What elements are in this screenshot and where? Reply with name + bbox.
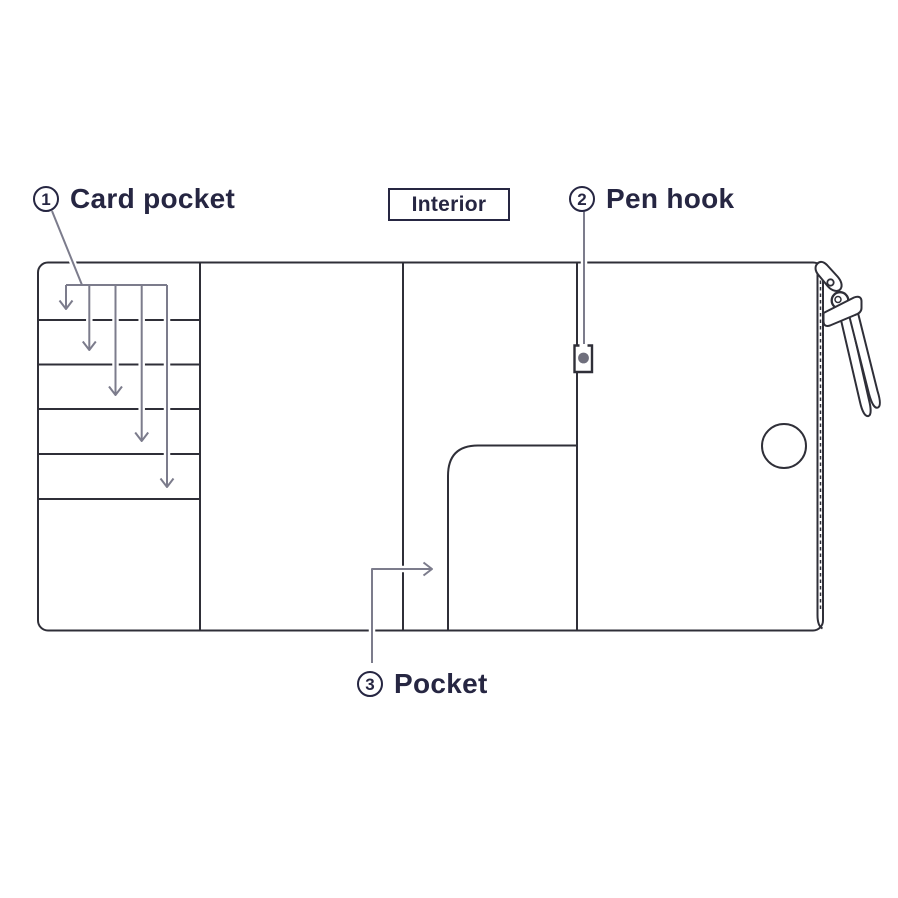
zipper-slider-hole	[827, 279, 833, 285]
organizer-interior-diagram	[0, 0, 898, 898]
pen-hook-label: Pen hook	[606, 183, 734, 215]
interior-tag: Interior	[388, 188, 510, 221]
pen-hook-snap-dot	[578, 353, 589, 364]
organizer-body	[38, 263, 823, 631]
pen-hook-callout: 2 Pen hook	[569, 183, 734, 215]
pen-hook	[574, 346, 594, 373]
pocket-callout: 3 Pocket	[357, 668, 488, 700]
thumb-hole	[762, 424, 806, 468]
card-pocket-label: Card pocket	[70, 183, 235, 215]
card-pocket-number-badge: 1	[33, 186, 59, 212]
body-outline	[38, 263, 823, 631]
zipper-pull	[816, 262, 880, 416]
pocket-number-badge: 3	[357, 671, 383, 697]
card-pocket-callout: 1 Card pocket	[33, 183, 235, 215]
diagram-page: 1 Card pocket Interior 2 Pen hook 3 Pock…	[0, 0, 898, 898]
pocket-label: Pocket	[394, 668, 488, 700]
pen-hook-number-badge: 2	[569, 186, 595, 212]
